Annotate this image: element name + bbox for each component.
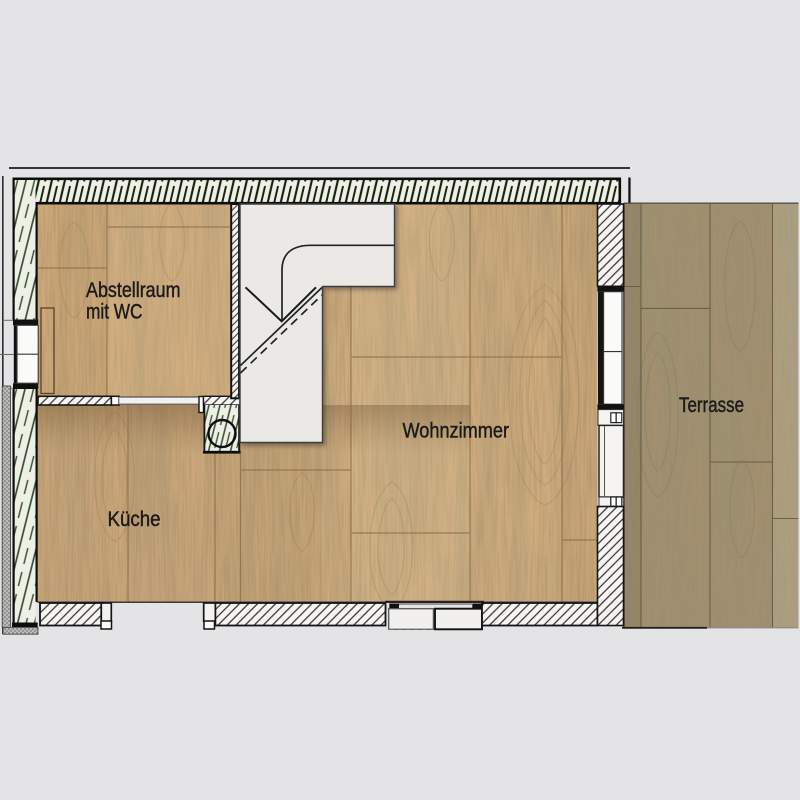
svg-text:Terrasse: Terrasse	[679, 393, 744, 417]
svg-text:Abstellraum: Abstellraum	[86, 278, 181, 302]
svg-text:mit WC: mit WC	[86, 300, 143, 324]
svg-text:Wohnzimmer: Wohnzimmer	[403, 419, 510, 443]
svg-text:Küche: Küche	[108, 507, 161, 531]
